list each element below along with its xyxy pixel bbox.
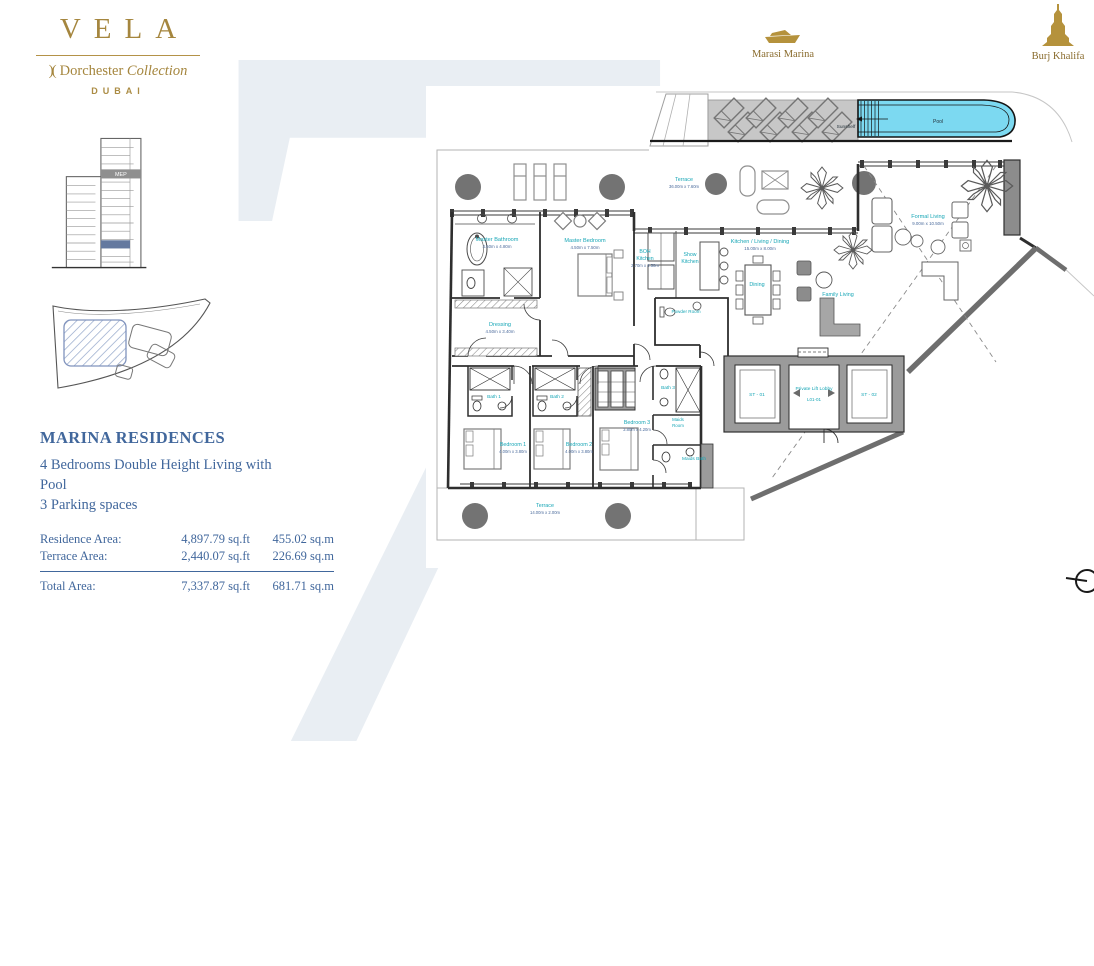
mep-floor-label: MEP — [115, 172, 127, 178]
label-kitchen-living-dining: Kitchen / Living / Dining — [731, 239, 789, 245]
dorchester-mark-icon: )( — [49, 63, 55, 79]
label-maids-bath: Maids Bath — [682, 456, 706, 462]
page-title: MARINA RESIDENCES — [40, 428, 300, 448]
svg-text:4.50m x 7.50m: 4.50m x 7.50m — [570, 245, 599, 250]
pool-label: Pool — [933, 119, 943, 125]
label-terrace-top: Terrace — [675, 177, 693, 183]
landmark-burj: Burj Khalifa — [1022, 4, 1094, 63]
city-label: DUBAI — [28, 86, 208, 96]
gold-divider — [36, 55, 200, 56]
sunshelf-label: Sunshelf — [837, 124, 856, 130]
label-show-kitchen: Show — [684, 252, 697, 258]
svg-text:4.50m x 4.80m: 4.50m x 4.80m — [482, 244, 511, 249]
label-bath1: Bath 1 — [487, 394, 501, 400]
svg-text:36.00m x 7.60m: 36.00m x 7.60m — [669, 184, 700, 189]
bedroom-furniture — [464, 428, 638, 470]
site-plan-icon — [50, 296, 215, 392]
svg-text:9.00m x 10.50m: 9.00m x 10.50m — [912, 221, 944, 226]
unit-subtitle-2: 3 Parking spaces — [40, 495, 300, 515]
unit-subtitle-1: 4 Bedrooms Double Height Living with Poo… — [40, 455, 300, 495]
svg-text:L01-01: L01-01 — [807, 397, 822, 402]
svg-text:4.50m x 3.40m: 4.50m x 3.40m — [485, 329, 514, 334]
landmark-marina: Marasi Marina — [740, 22, 826, 61]
label-terrace-bottom: Terrace — [536, 503, 554, 509]
unit-info: MARINA RESIDENCES 4 Bedrooms Double Heig… — [40, 428, 300, 595]
highlighted-floor — [101, 240, 130, 248]
label-family-living: Family Living — [822, 292, 853, 298]
label-formal-living: Formal Living — [911, 214, 945, 220]
label-master-bathroom: Master Bathroom — [476, 237, 519, 243]
svg-text:15.00m x 8.00m: 15.00m x 8.00m — [744, 246, 776, 251]
label-bath3: Bath 3 — [661, 385, 675, 391]
building-elevation-icon: MEP — [50, 133, 150, 273]
area-row-total: Total Area: 7,337.87 sq.ft 681.71 sq.m — [40, 578, 300, 595]
label-master-bedroom: Master Bedroom — [564, 238, 606, 244]
label-bedroom3: Bedroom 3 — [624, 420, 650, 426]
svg-text:2.70m x 4.50m: 2.70m x 4.50m — [631, 263, 659, 268]
burj-khalifa-icon — [1038, 4, 1078, 48]
svg-text:4.00m x 3.80m: 4.00m x 3.80m — [565, 449, 593, 454]
label-st01: ST - 01 — [749, 392, 765, 398]
label-lift-lobby: Private Lift Lobby — [795, 386, 833, 392]
brand-block: VELA )(Dorchester Collection DUBAI — [28, 13, 208, 96]
svg-text:4.00m x 3.80m: 4.00m x 3.80m — [499, 449, 527, 454]
label-dining: Dining — [749, 282, 764, 288]
label-bedroom1: Bedroom 1 — [500, 442, 526, 448]
label-powder-room: Powder Room — [671, 309, 700, 314]
area-row-terrace: Terrace Area: 2,440.07 sq.ft 226.69 sq.m — [40, 548, 300, 565]
svg-text:3.80m x 4.20m: 3.80m x 4.20m — [623, 427, 651, 432]
dorchester-collection: )(Dorchester Collection — [28, 63, 208, 80]
label-bath2: Bath 2 — [550, 394, 564, 400]
svg-text:Kitchen: Kitchen — [681, 259, 698, 265]
vela-logo: VELA — [28, 13, 208, 46]
area-table: Residence Area: 4,897.79 sq.ft 455.02 sq… — [40, 531, 300, 595]
table-divider — [40, 571, 334, 572]
unit-location-highlight — [64, 320, 126, 366]
compass-icon — [1066, 570, 1094, 592]
yacht-icon — [763, 22, 803, 46]
svg-text:14.00m x 2.00m: 14.00m x 2.00m — [530, 510, 561, 515]
label-boh-kitchen: BOH — [639, 249, 650, 255]
area-row-residence: Residence Area: 4,897.79 sq.ft 455.02 sq… — [40, 531, 300, 548]
label-maids-room: Maids — [672, 417, 685, 422]
svg-text:Kitchen: Kitchen — [636, 256, 653, 262]
label-bedroom2: Bedroom 2 — [566, 442, 592, 448]
svg-text:Room: Room — [672, 423, 684, 428]
label-dressing: Dressing — [489, 322, 511, 328]
sundeck: Sunshelf — [650, 94, 858, 146]
label-st02: ST - 02 — [861, 392, 877, 398]
